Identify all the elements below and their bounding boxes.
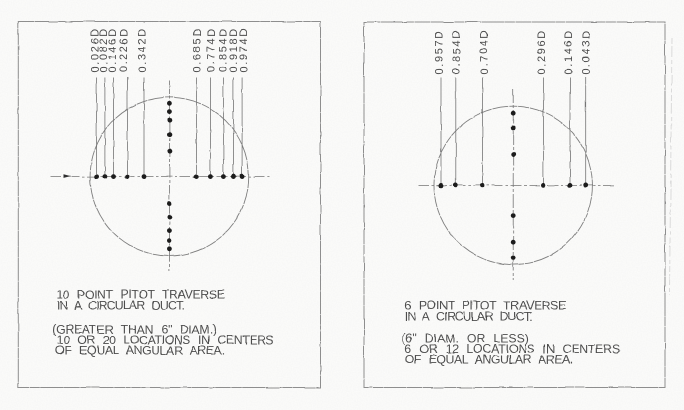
svg-text:0.146D: 0.146D [107, 28, 119, 73]
svg-text:0.146D: 0.146D [563, 30, 575, 75]
svg-text:0.957D: 0.957D [434, 30, 446, 75]
svg-text:0.704D: 0.704D [478, 30, 490, 75]
svg-text:0.226D: 0.226D [118, 28, 130, 73]
svg-text:OF EQUAL ANGULAR AREA.: OF EQUAL ANGULAR AREA. [55, 344, 226, 358]
svg-text:0.974D: 0.974D [238, 28, 250, 72]
svg-text:IN A CIRCULAR DUCT.: IN A CIRCULAR DUCT. [57, 298, 186, 312]
svg-text:0.296D: 0.296D [536, 30, 548, 75]
svg-text:OF EQUAL ANGULAR AREA.: OF EQUAL ANGULAR AREA. [405, 353, 574, 367]
svg-text:0.342D: 0.342D [137, 28, 149, 73]
svg-text:IN A CIRCULAR DUCT.: IN A CIRCULAR DUCT. [405, 309, 534, 323]
svg-text:0.685D: 0.685D [191, 28, 203, 73]
svg-text:0.774D: 0.774D [205, 28, 217, 72]
svg-text:0.854D: 0.854D [451, 30, 463, 75]
svg-text:0.043D: 0.043D [580, 30, 592, 75]
